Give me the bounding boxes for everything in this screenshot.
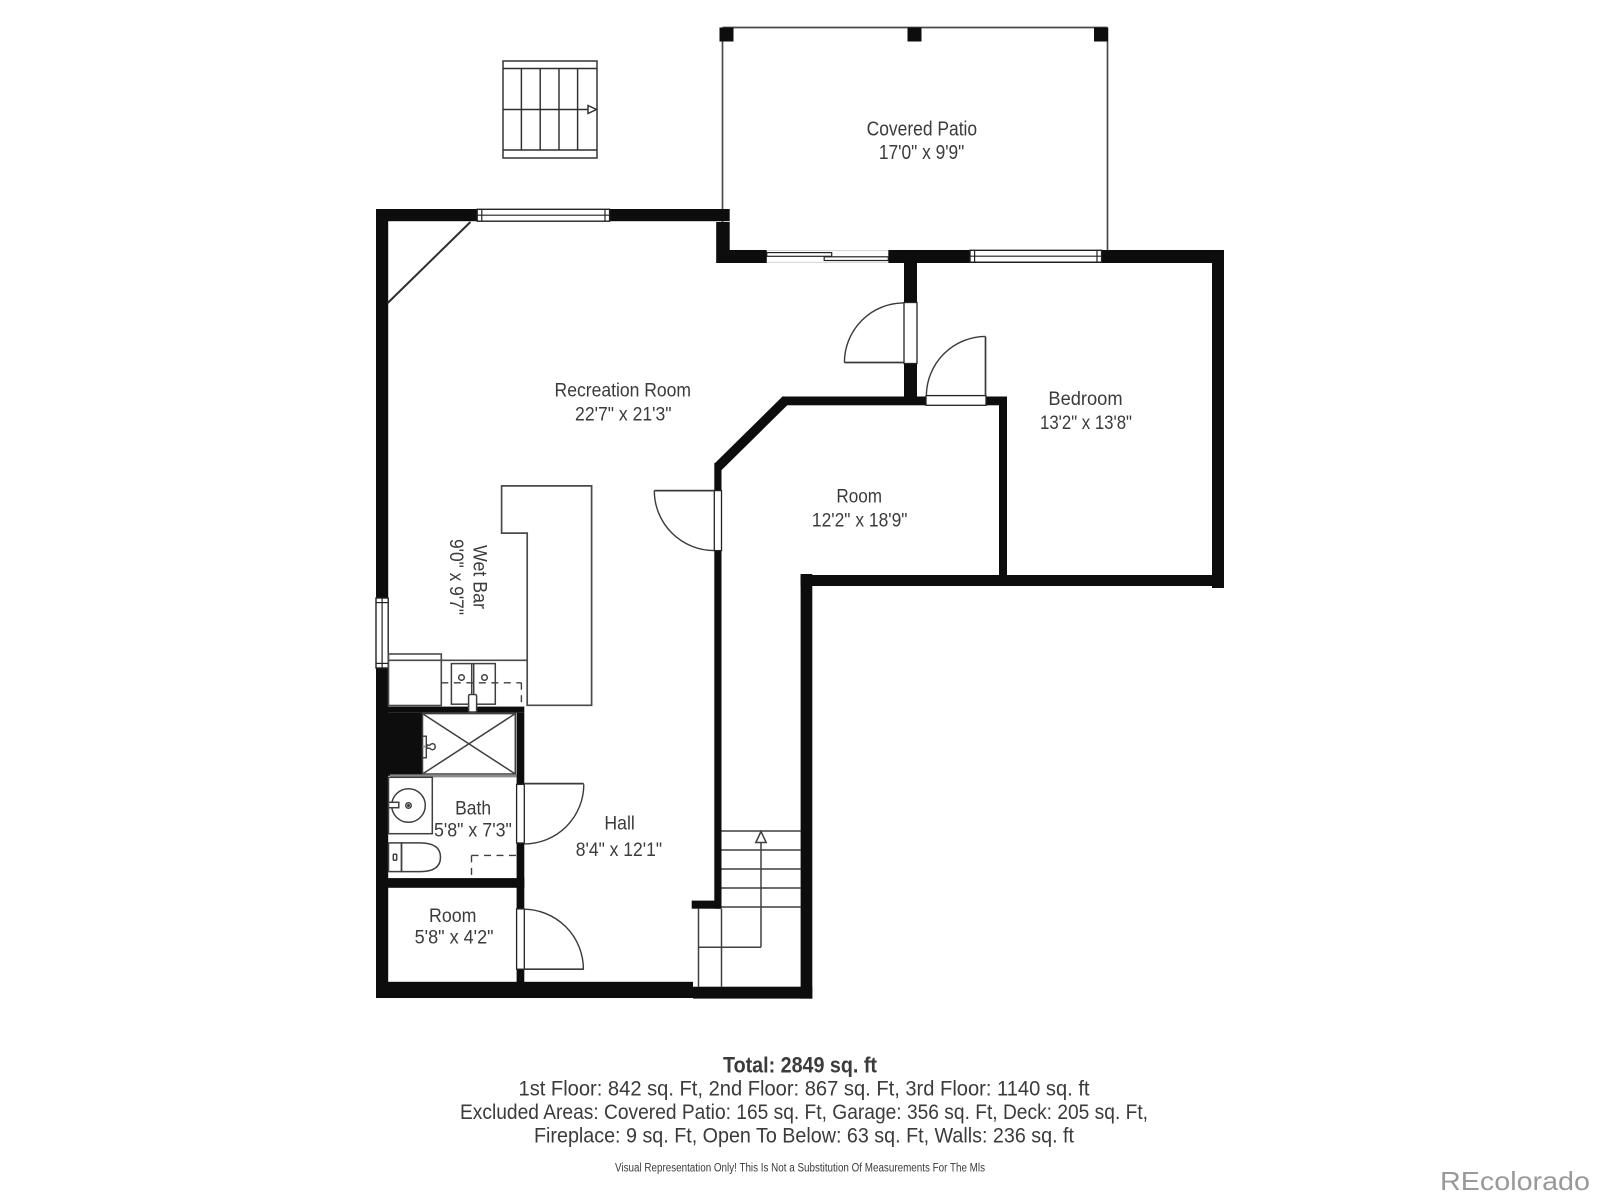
- svg-text:REcolorado: REcolorado: [1440, 1166, 1590, 1196]
- svg-text:5'8" x 7'3": 5'8" x 7'3": [434, 820, 512, 841]
- svg-text:17'0" x 9'9": 17'0" x 9'9": [879, 142, 965, 164]
- svg-text:Visual Representation Only! Th: Visual Representation Only! This Is Not …: [615, 1162, 985, 1174]
- svg-text:1st Floor: 842 sq. Ft, 2nd Flo: 1st Floor: 842 sq. Ft, 2nd Floor: 867 sq…: [519, 1077, 1090, 1100]
- svg-text:Excluded Areas: Covered Patio:: Excluded Areas: Covered Patio: 165 sq. F…: [460, 1101, 1148, 1124]
- svg-text:Total: 2849 sq. ft: Total: 2849 sq. ft: [723, 1052, 878, 1077]
- svg-text:Covered Patio: Covered Patio: [867, 119, 978, 141]
- svg-text:Hall: Hall: [604, 813, 634, 834]
- svg-text:Room: Room: [429, 906, 476, 927]
- svg-text:Wet Bar: Wet Bar: [469, 545, 491, 609]
- svg-text:9'0" x 9'7": 9'0" x 9'7": [445, 539, 467, 615]
- svg-text:12'2" x 18'9": 12'2" x 18'9": [812, 511, 908, 532]
- svg-text:Bedroom: Bedroom: [1048, 389, 1122, 410]
- svg-text:13'2" x 13'8": 13'2" x 13'8": [1040, 413, 1132, 434]
- svg-text:Recreation Room: Recreation Room: [555, 381, 692, 402]
- svg-text:5'8" x 4'2": 5'8" x 4'2": [415, 927, 494, 948]
- svg-text:Fireplace: 9 sq. Ft, Open To B: Fireplace: 9 sq. Ft, Open To Below: 63 s…: [534, 1124, 1074, 1147]
- svg-text:Room: Room: [836, 487, 882, 508]
- svg-text:8'4" x 12'1": 8'4" x 12'1": [576, 840, 662, 861]
- svg-text:Bath: Bath: [455, 798, 491, 819]
- svg-text:22'7" x 21'3": 22'7" x 21'3": [575, 404, 672, 425]
